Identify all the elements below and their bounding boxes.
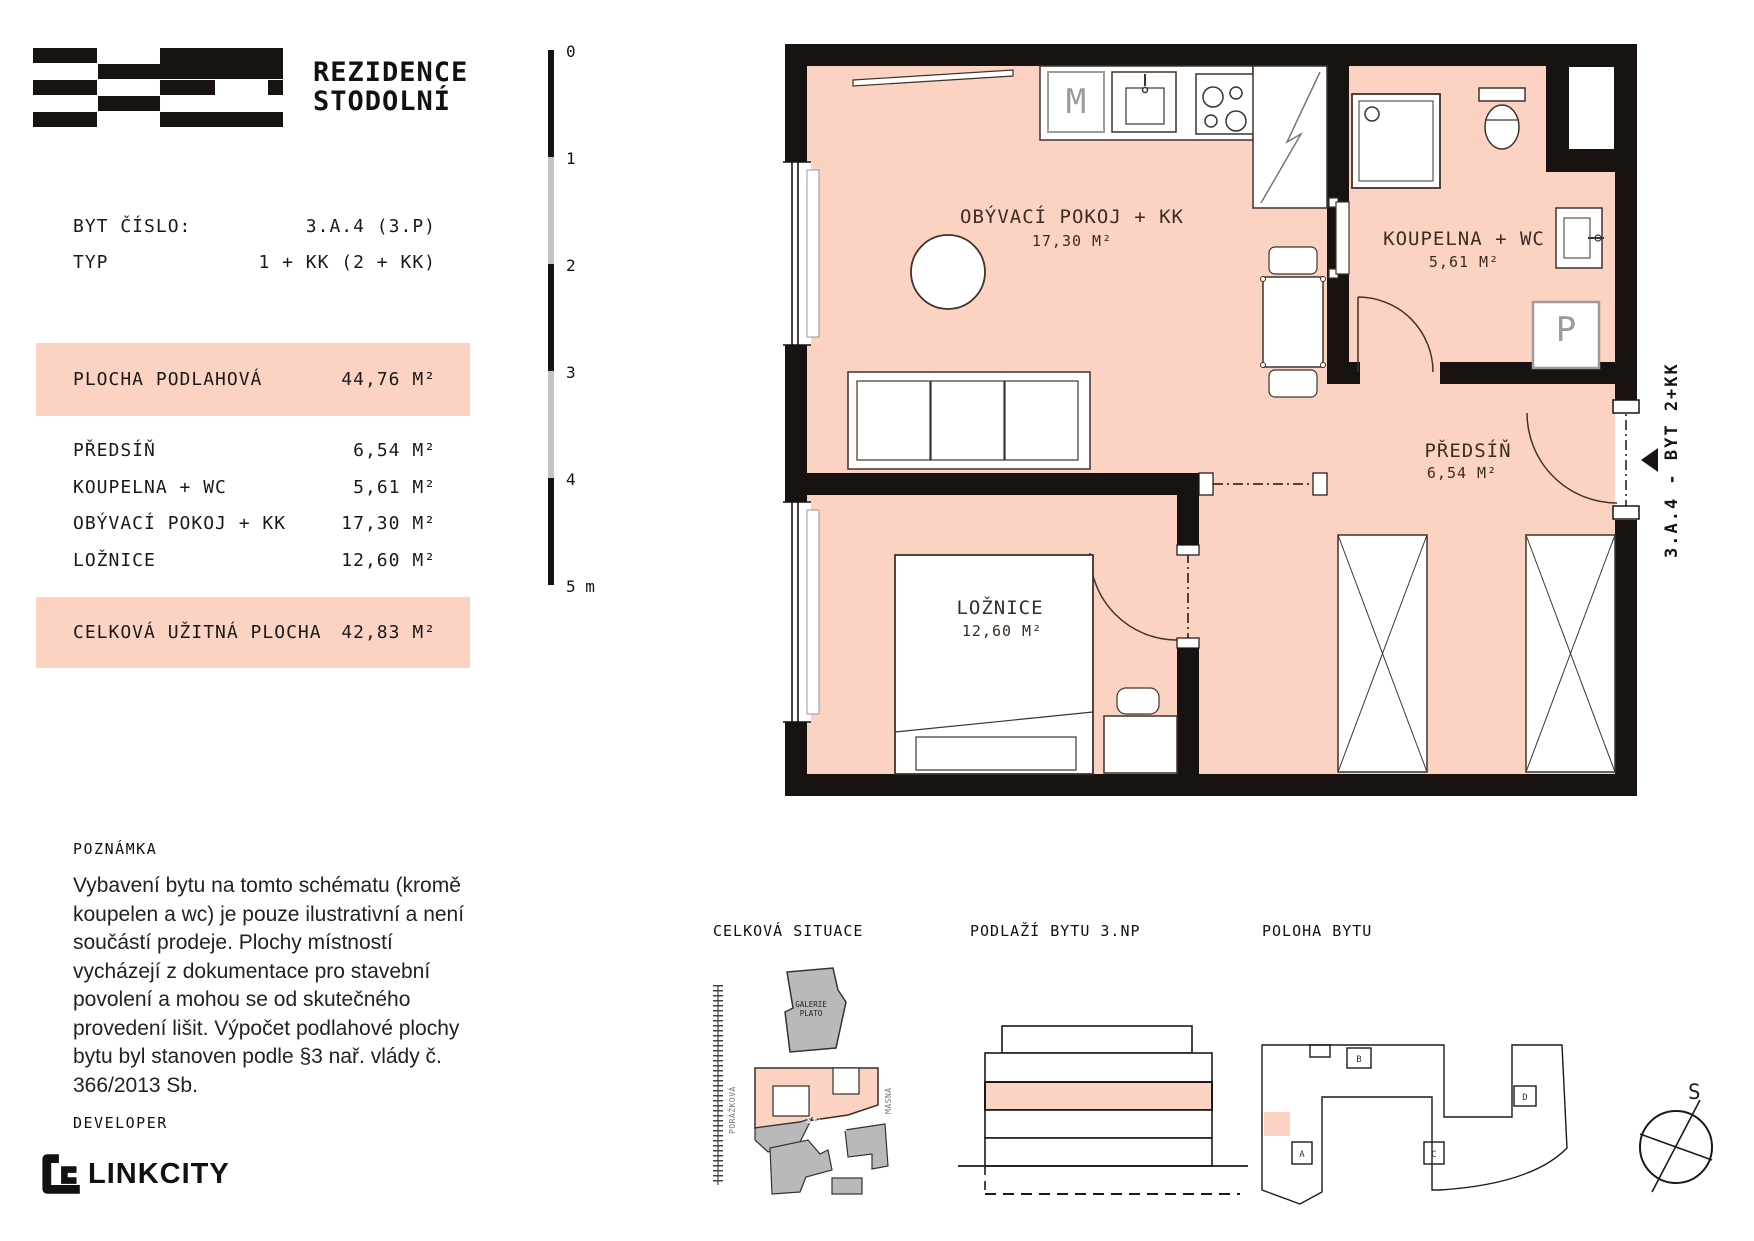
unit-position-highlight	[1264, 1112, 1290, 1136]
room-label-living: OBÝVACÍ POKOJ + KK	[960, 206, 1184, 228]
block-label-a: A	[1299, 1150, 1305, 1160]
street-label-masna: MASNÁ	[884, 1074, 893, 1114]
washing-machine-icon: P	[1533, 302, 1599, 368]
linkcity-logo-icon	[38, 1152, 82, 1196]
room-label: LOŽNICE	[73, 550, 156, 571]
floor-diagram-heading: PODLAŽÍ BYTU 3.NP	[970, 922, 1141, 940]
room-label: KOUPELNA + WC	[73, 477, 227, 498]
microwave-label: M	[1066, 82, 1086, 122]
table-row: PŘEDSÍŇ 6,54 M²	[73, 440, 436, 461]
room-value: 12,60 M²	[341, 550, 436, 571]
situation-heading: CELKOVÁ SITUACE	[713, 922, 863, 940]
room-label: OBÝVACÍ POKOJ + KK	[73, 513, 286, 534]
room-area-bathroom: 5,61 M²	[1429, 253, 1499, 271]
note-text: Vybavení bytu na tomto schématu (kromě k…	[73, 872, 465, 1100]
tall-cabinet-icon	[1253, 66, 1327, 208]
window	[783, 502, 819, 722]
room-area-hall: 6,54 M²	[1427, 464, 1497, 482]
room-value: 17,30 M²	[341, 513, 436, 534]
total-area-label: CELKOVÁ UŽITNÁ PLOCHA	[73, 622, 322, 643]
unit-number-row: BYT ČÍSLO: 3.A.4 (3.P)	[73, 216, 436, 237]
shaft	[1568, 66, 1615, 150]
dining-table-icon	[1261, 247, 1326, 397]
project-title-line2: STODOLNÍ	[313, 87, 468, 116]
street-label-porazkova: PORÁŽKOVÁ	[728, 1072, 737, 1134]
room-value: 5,61 M²	[353, 477, 436, 498]
washer-label: P	[1556, 310, 1576, 350]
unit-number-value: 3.A.4 (3.P)	[306, 216, 436, 237]
floor-area-highlight-row: PLOCHA PODLAHOVÁ 44,76 M²	[36, 343, 470, 416]
unit-type-value: 1 + KK (2 + KK)	[258, 252, 436, 273]
scale-tick-3: 3	[566, 363, 576, 382]
wardrobe-icon	[1338, 535, 1427, 772]
cooktop-icon	[1196, 74, 1254, 134]
floor-plan: M	[780, 40, 1700, 800]
brochure-page: REZIDENCE STODOLNÍ BYT ČÍSLO: 3.A.4 (3.P…	[0, 0, 1754, 1241]
room-area-bedroom: 12,60 M²	[962, 622, 1042, 640]
unit-number-label: BYT ČÍSLO:	[73, 216, 191, 237]
brand-logo-icon	[33, 48, 283, 127]
total-area-value: 42,83 M²	[341, 622, 436, 643]
bathroom-sink-icon	[1556, 208, 1604, 268]
block-label-d: D	[1522, 1093, 1527, 1103]
scale-tick-2: 2	[566, 256, 576, 275]
window	[783, 162, 819, 345]
developer-label: DEVELOPER	[73, 1114, 168, 1132]
room-label: PŘEDSÍŇ	[73, 440, 156, 461]
round-table-icon	[911, 235, 985, 309]
highlighted-floor	[985, 1082, 1212, 1110]
scale-tick-0: 0	[566, 42, 576, 61]
room-label-bathroom: KOUPELNA + WC	[1383, 228, 1545, 250]
scale-tick-5m: 5 m	[566, 577, 595, 596]
floor-area-value: 44,76 M²	[341, 369, 436, 390]
shower-icon	[1352, 94, 1440, 188]
unit-type-row: TYP 1 + KK (2 + KK)	[73, 252, 436, 273]
sofa-icon	[848, 372, 1090, 469]
position-diagram: B D A C	[1262, 1045, 1567, 1204]
developer-name: LINKCITY	[88, 1158, 230, 1191]
bottom-diagrams: B D A C	[620, 950, 1754, 1230]
entry-arrow-icon	[1641, 448, 1658, 472]
unit-type-label: TYP	[73, 252, 109, 273]
project-title-line1: REZIDENCE	[313, 58, 468, 87]
room-value: 6,54 M²	[353, 440, 436, 461]
compass-icon	[1640, 1100, 1712, 1192]
entry-label: 3.A.4 - BYT 2+KK	[1662, 352, 1682, 568]
compass-north-label: S	[1688, 1080, 1701, 1104]
scale-tick-4: 4	[566, 470, 576, 489]
project-title: REZIDENCE STODOLNÍ	[313, 58, 468, 116]
building-elevation	[958, 1026, 1248, 1194]
room-label-hall: PŘEDSÍŇ	[1424, 440, 1511, 462]
floor-area-label: PLOCHA PODLAHOVÁ	[73, 369, 262, 390]
scale-tick-1: 1	[566, 149, 576, 168]
total-area-highlight-row: CELKOVÁ UŽITNÁ PLOCHA 42,83 M²	[36, 597, 470, 668]
room-label-bedroom: LOŽNICE	[956, 597, 1043, 619]
table-row: KOUPELNA + WC 5,61 M²	[73, 477, 436, 498]
bed-icon	[895, 555, 1093, 774]
room-area-living: 17,30 M²	[1032, 232, 1112, 250]
position-heading: POLOHA BYTU	[1262, 922, 1372, 940]
wardrobe-icon	[1526, 535, 1615, 772]
note-heading: POZNÁMKA	[73, 840, 157, 858]
table-row: OBÝVACÍ POKOJ + KK 17,30 M²	[73, 513, 436, 534]
landmark-label: GALERIE PLATO	[788, 1000, 834, 1018]
kitchen-sink-icon	[1112, 72, 1176, 132]
table-row: LOŽNICE 12,60 M²	[73, 550, 436, 571]
block-label-c: C	[1431, 1150, 1436, 1160]
block-label-b: B	[1356, 1055, 1361, 1065]
